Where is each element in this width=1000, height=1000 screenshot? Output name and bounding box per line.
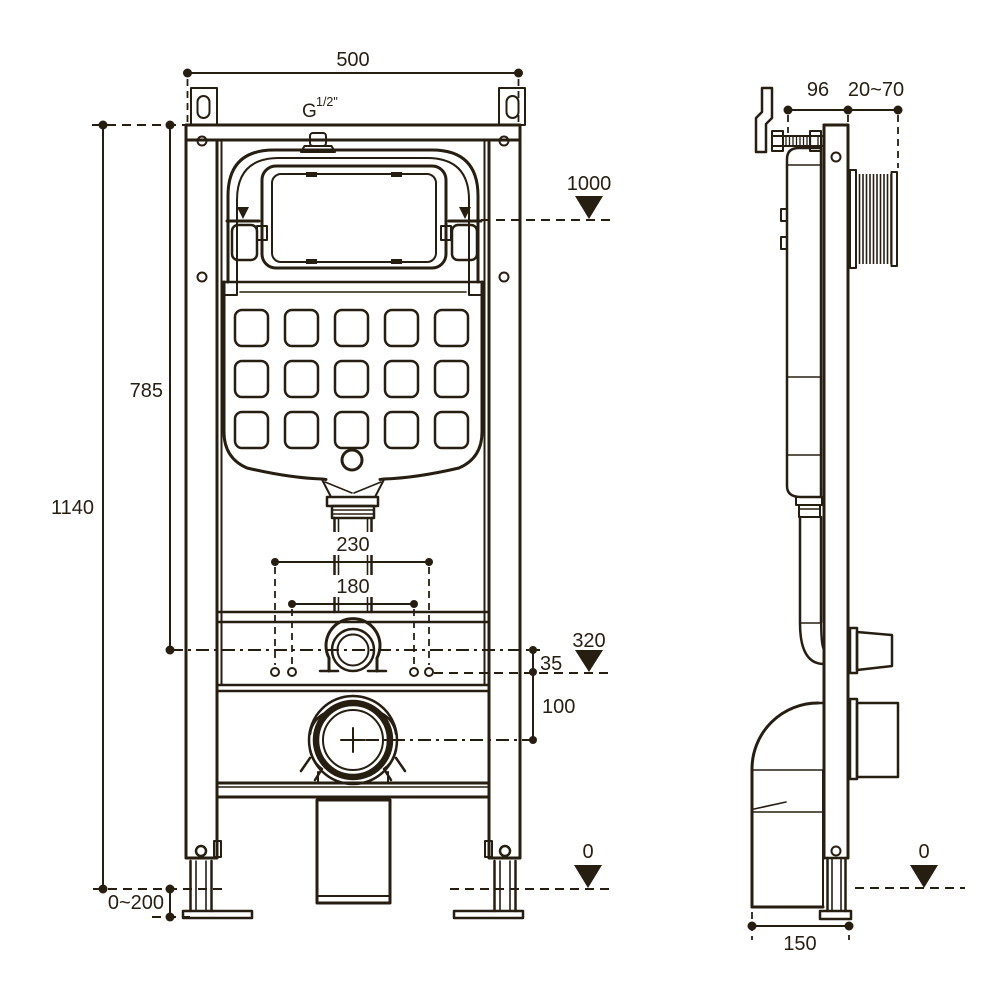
- inlet-bracket: [320, 619, 386, 671]
- level-marker-0-front: [574, 865, 602, 888]
- water-level-mark-left: [227, 207, 259, 221]
- dim-overall-width: 500: [336, 49, 369, 71]
- level-marker-320: [575, 650, 603, 672]
- dim-pipe-180: 180: [336, 576, 369, 598]
- drawing-canvas: 500 G 1/2" 1140 785 1000 230: [0, 0, 1000, 1000]
- thread-label: G: [302, 101, 317, 122]
- mounting-tab-left: [191, 88, 217, 125]
- cistern-grid: [235, 310, 468, 448]
- side-view: 96 20~70 0 150: [748, 79, 966, 955]
- inspection-window: [257, 166, 451, 268]
- mounting-tab-right: [499, 88, 525, 125]
- wall-sleeve: [850, 170, 897, 268]
- cistern-tank: [222, 282, 484, 518]
- water-level-mark-right: [449, 207, 481, 221]
- side-pad-left: [232, 225, 257, 260]
- dim-35: 35: [540, 653, 562, 675]
- side-flush-pipe: [800, 517, 824, 664]
- cistern-outlet-funnel: [322, 480, 384, 519]
- frame-hole: [500, 273, 509, 282]
- waste-outlet: [301, 696, 405, 903]
- side-cistern: [781, 148, 822, 517]
- front-view: 500 G 1/2" 1140 785 1000 230: [51, 49, 612, 922]
- dim-outlet-150: 150: [783, 933, 816, 955]
- side-pad-right: [452, 225, 477, 260]
- dim-level-320: 320: [572, 630, 605, 652]
- outlet-box: [317, 800, 390, 903]
- dim-upper-height: 785: [130, 380, 163, 402]
- frame-hole: [198, 273, 207, 282]
- dim-level-1000: 1000: [567, 173, 612, 195]
- threaded-rod: [786, 136, 822, 146]
- level-marker-0-side: [910, 865, 938, 888]
- side-frame-rail: [824, 125, 848, 858]
- technical-drawing: 500 G 1/2" 1140 785 1000 230: [0, 0, 1000, 1000]
- dim-foot-range: 0~200: [108, 892, 164, 914]
- dim-wall-range: 20~70: [848, 79, 904, 101]
- dim-pipe-230: 230: [336, 534, 369, 556]
- dim-level-0-front: 0: [582, 841, 593, 863]
- dim-level-0-side: 0: [918, 841, 929, 863]
- dim-overall-height: 1140: [51, 497, 94, 519]
- thread-size-label: 1/2": [316, 95, 338, 109]
- level-marker-1000: [575, 196, 603, 219]
- dim-100: 100: [542, 696, 575, 718]
- rail-hole: [832, 153, 841, 162]
- dim-depth-96: 96: [807, 79, 829, 101]
- side-inlet-stub: [850, 628, 892, 673]
- cistern-drain-hole: [342, 450, 362, 470]
